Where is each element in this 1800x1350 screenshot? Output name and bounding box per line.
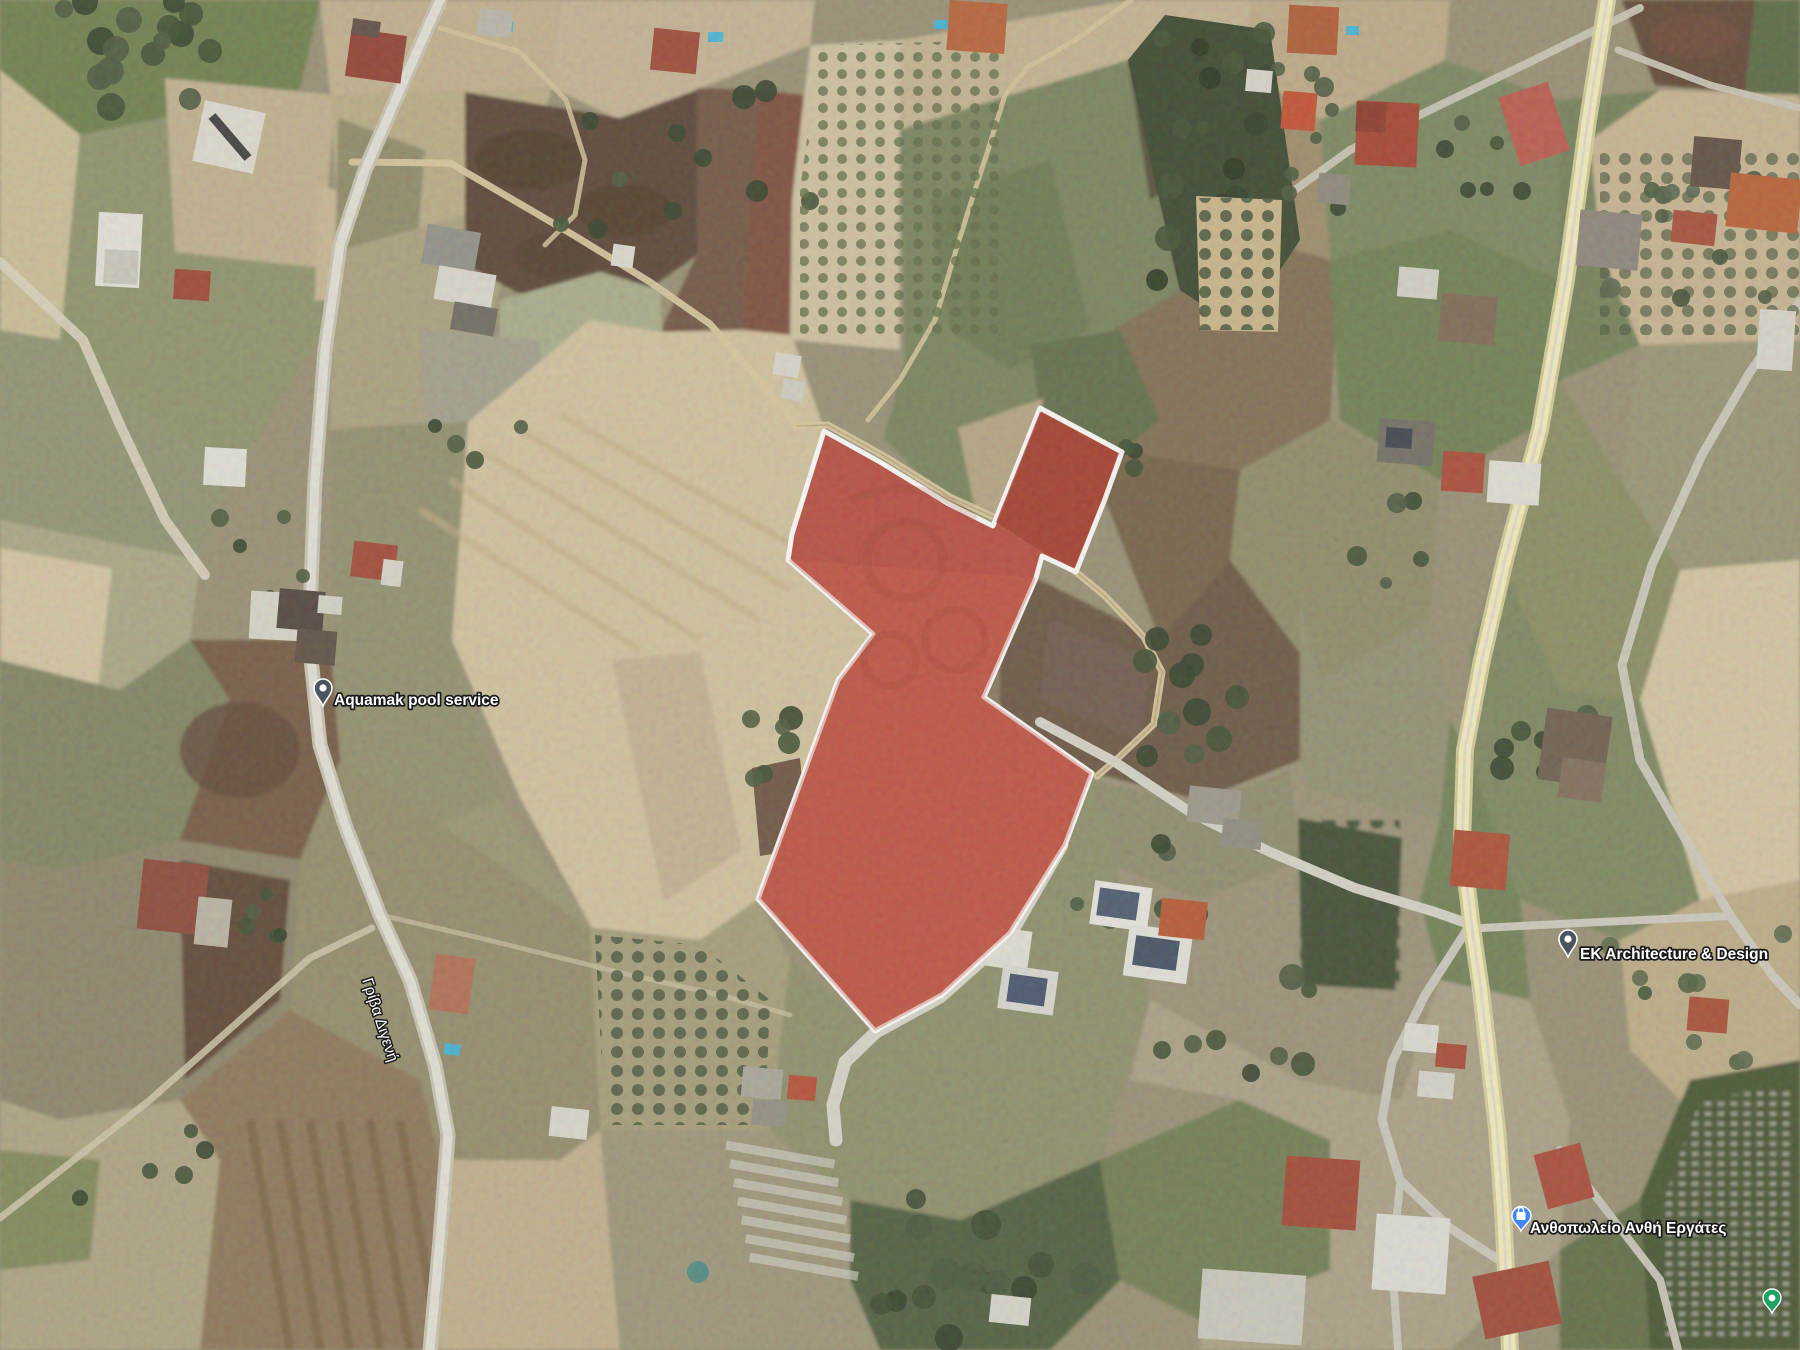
svg-text:Ανθοπωλείο Ανθή Εργάτες: Ανθοπωλείο Ανθή Εργάτες <box>1530 1220 1726 1237</box>
svg-text:Aquamak pool service: Aquamak pool service <box>334 692 499 709</box>
svg-text:EK Architecture & Design: EK Architecture & Design <box>1580 946 1768 963</box>
